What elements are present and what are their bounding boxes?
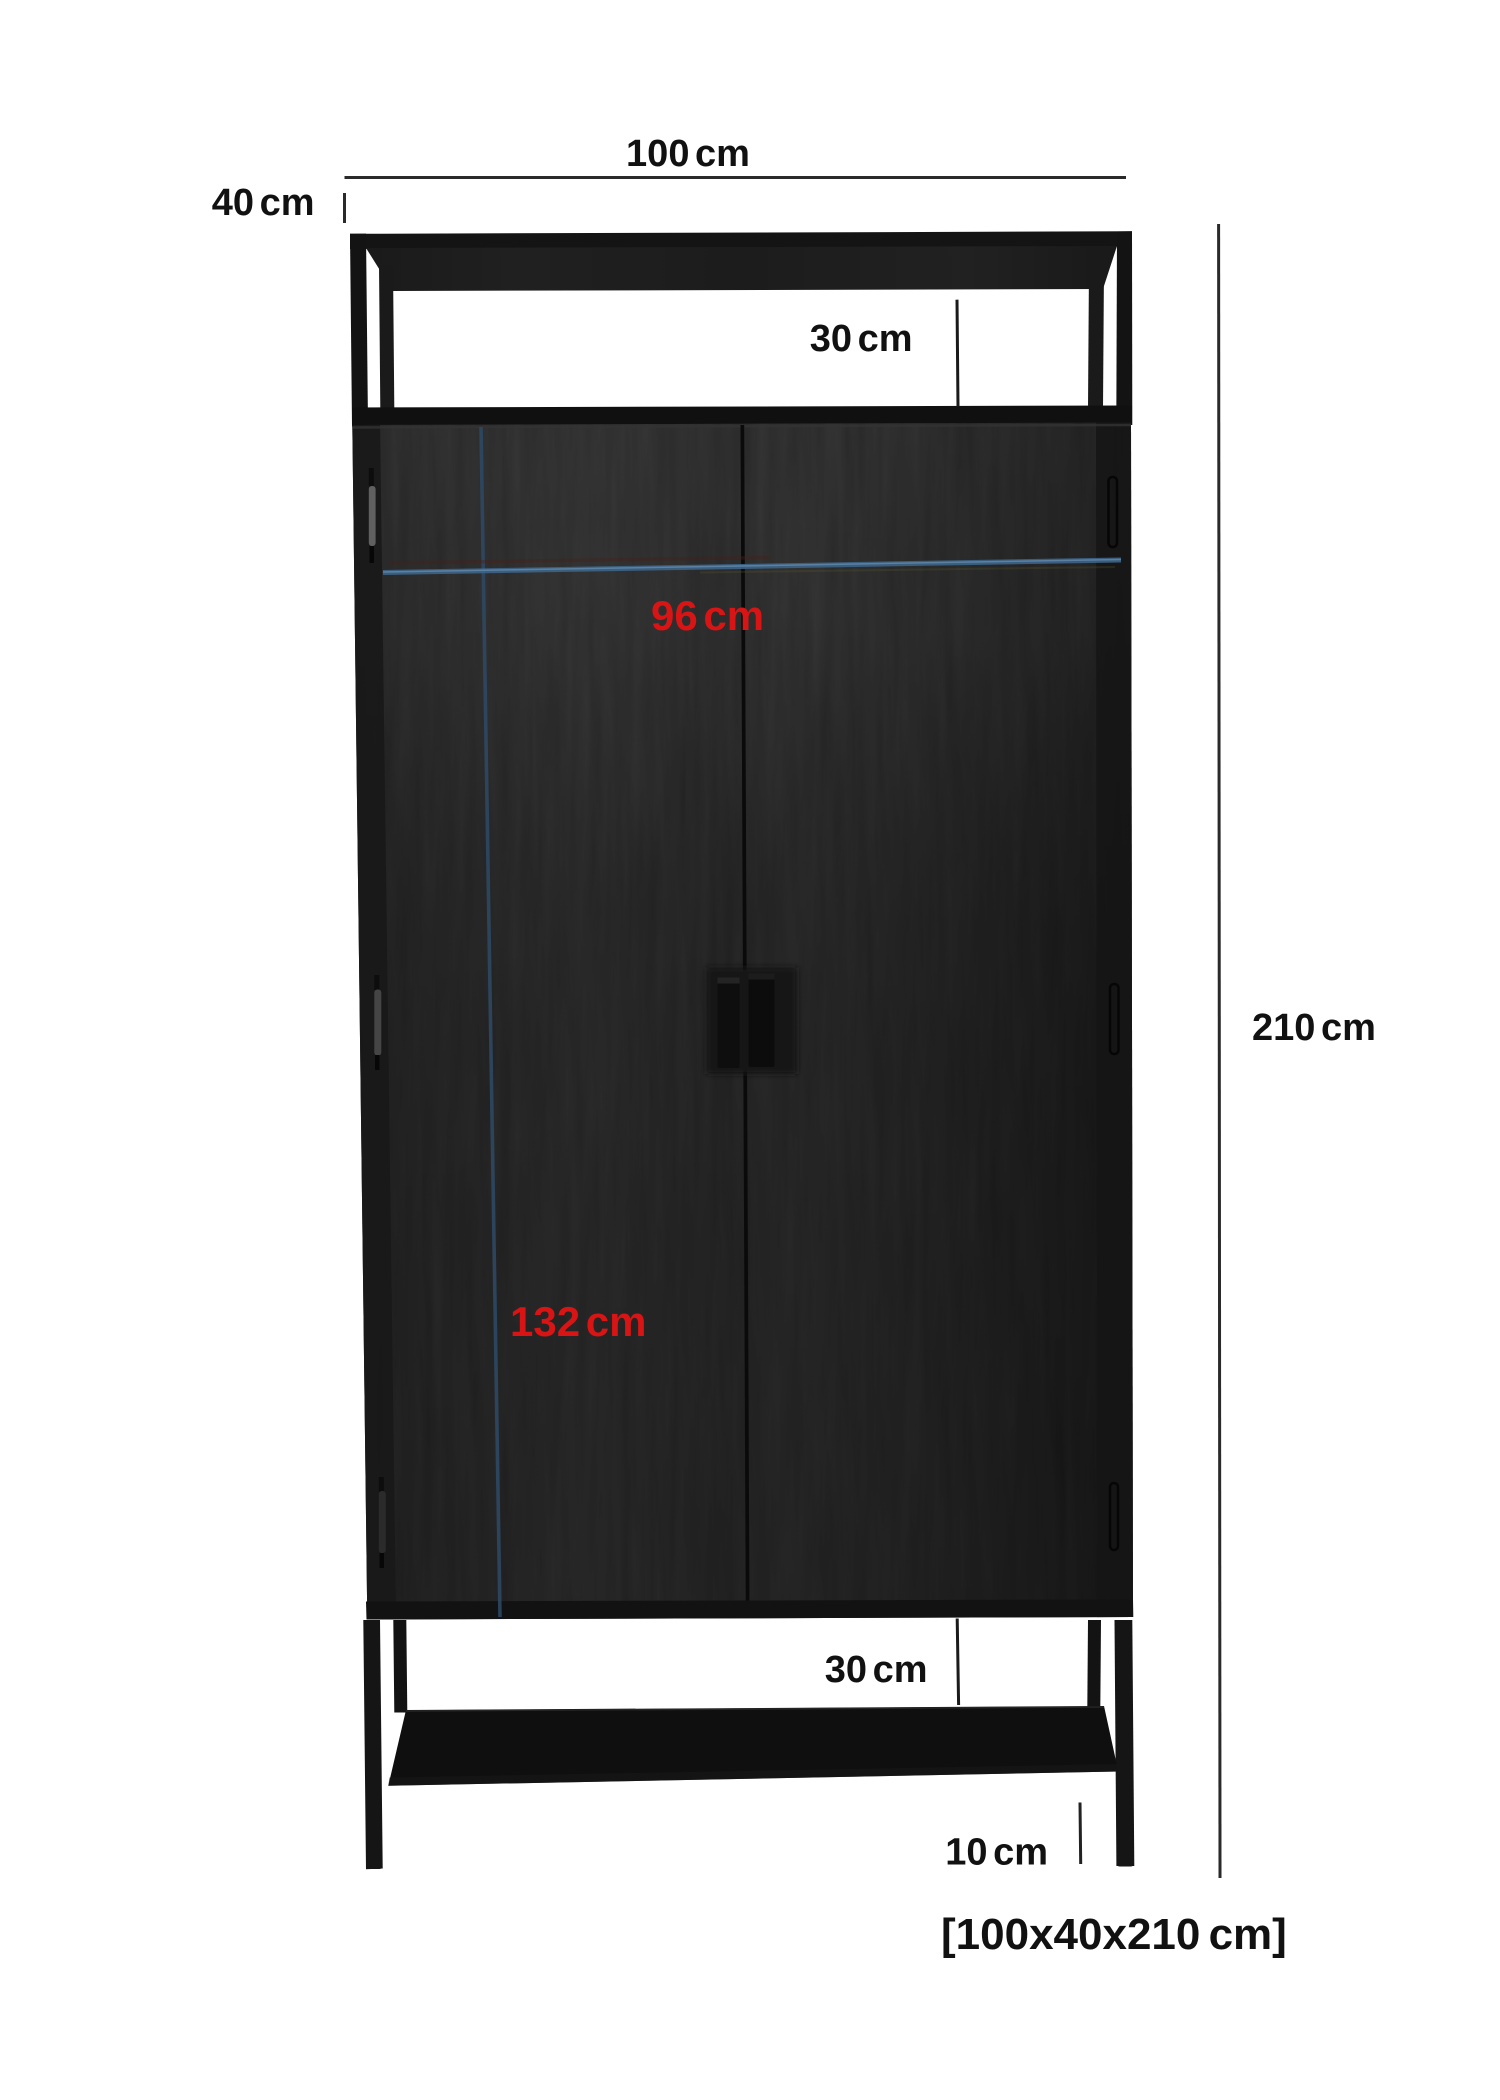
svg-text:96 cm: 96 cm (651, 592, 764, 639)
svg-text:100 cm: 100 cm (626, 133, 750, 175)
svg-text:40 cm: 40 cm (212, 182, 315, 224)
svg-text:30 cm: 30 cm (810, 318, 913, 360)
svg-text:10 cm: 10 cm (945, 1832, 1048, 1874)
svg-text:30 cm: 30 cm (825, 1649, 928, 1691)
svg-text:[100x40x210 cm]: [100x40x210 cm] (941, 1910, 1287, 1959)
svg-text:132 cm: 132 cm (510, 1298, 646, 1345)
svg-text:210 cm: 210 cm (1252, 1007, 1376, 1049)
